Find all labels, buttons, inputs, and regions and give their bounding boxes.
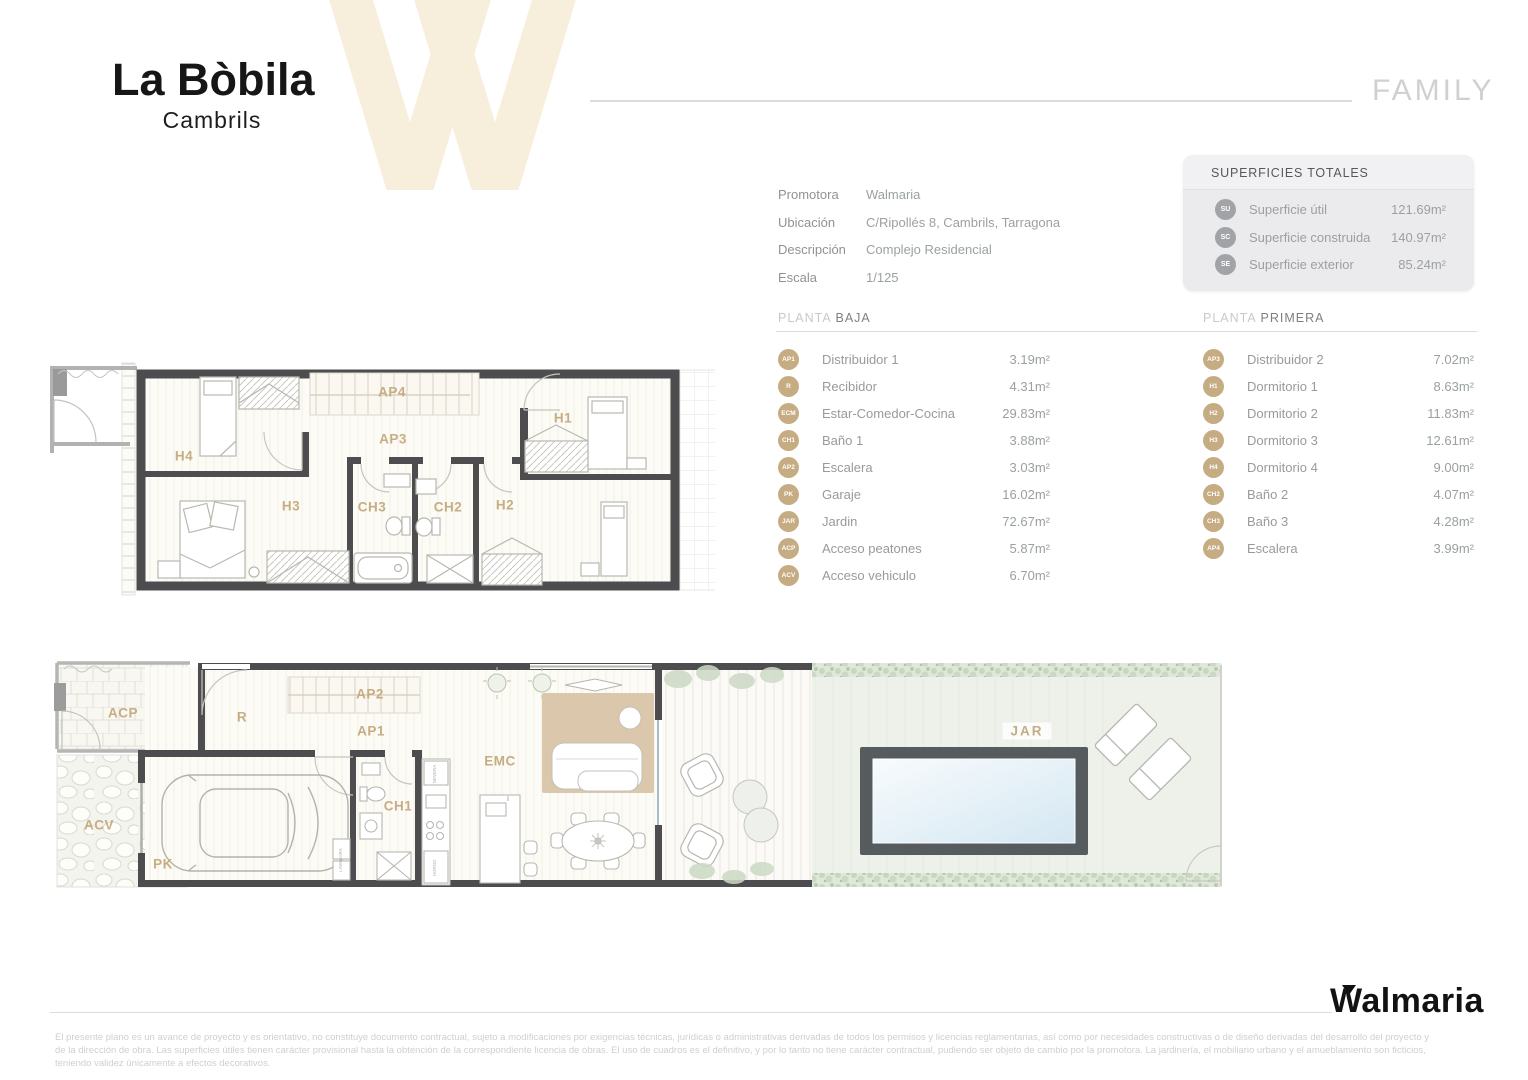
plan-type-label: FAMILY (1372, 74, 1494, 108)
room-row: H4 Dormitorio 4 9.00m² (1203, 454, 1474, 481)
room-row: PK Garaje 16.02m² (778, 481, 1050, 508)
info-value: Complejo Residencial (866, 242, 992, 257)
room-badge: H2 (1203, 403, 1224, 424)
planta-word: PLANTA (778, 311, 831, 325)
room-badge: H3 (1203, 430, 1224, 451)
columns-rule (776, 331, 1477, 332)
room-area: 3.88m² (1010, 433, 1050, 448)
room-area: 7.02m² (1434, 352, 1474, 367)
room-name: Distribuidor 1 (822, 352, 899, 367)
entry-annex (50, 363, 137, 595)
room-area: 11.83m² (1427, 406, 1474, 421)
room-name: Recibidor (822, 379, 877, 394)
room-row: AP4 Escalera 3.99m² (1203, 535, 1474, 562)
totals-box: SUPERFICIES TOTALES SU Superficie útil 1… (1183, 155, 1474, 291)
room-row: CH3 Baño 3 4.28m² (1203, 508, 1474, 535)
living-area (542, 679, 654, 793)
room-badge: ECM (778, 403, 799, 424)
project-title: La Bòbila (112, 54, 332, 106)
room-row: H3 Dormitorio 3 12.61m² (1203, 427, 1474, 454)
room-area: 72.67m² (1002, 514, 1050, 529)
room-row: H2 Dormitorio 2 11.83m² (1203, 400, 1474, 427)
info-value: Walmaria (866, 187, 920, 202)
room-name: Garaje (822, 487, 861, 502)
room-row: AP2 Escalera 3.03m² (778, 454, 1050, 481)
disclaimer-line: teniendo validez únicamente a efectos de… (55, 1057, 1475, 1070)
disclaimer-line: El presente plano es un avance de proyec… (55, 1031, 1475, 1044)
totals-row: SU Superficie útil 121.69m² (1183, 196, 1474, 224)
room-name: Baño 1 (822, 433, 863, 448)
room-name: Distribuidor 2 (1247, 352, 1324, 367)
room-badge: AP4 (1203, 538, 1224, 559)
room-badge: CH3 (1203, 511, 1224, 532)
totals-body: SU Superficie útil 121.69m² SC Superfici… (1183, 190, 1474, 279)
room-label-pk: PK (153, 857, 173, 872)
info-row: Promotora Walmaria (778, 181, 1178, 209)
room-label-h2: H2 (496, 498, 514, 513)
project-subtitle: Cambrils (112, 107, 312, 134)
room-area: 3.99m² (1434, 541, 1474, 556)
room-badge: CH1 (778, 430, 799, 451)
room-area: 4.07m² (1434, 487, 1474, 502)
primera-word: PRIMERA (1261, 311, 1325, 325)
room-badge: JAR (778, 511, 799, 532)
room-area: 3.19m² (1010, 352, 1050, 367)
room-row: ACV Acceso vehiculo 6.70m² (778, 562, 1050, 589)
room-row: JAR Jardin 72.67m² (778, 508, 1050, 535)
room-row: ACP Acceso peatones 5.87m² (778, 535, 1050, 562)
room-area: 8.63m² (1434, 379, 1474, 394)
room-label-ap2: AP2 (356, 687, 384, 702)
planta-primera-list: AP3 Distribuidor 2 7.02m² H1 Dormitorio … (1203, 346, 1474, 562)
room-label-h3: H3 (282, 499, 300, 514)
room-area: 29.83m² (1002, 406, 1050, 421)
room-row: CH1 Baño 1 3.88m² (778, 427, 1050, 454)
area-label: Superficie exterior (1249, 257, 1354, 272)
floor-plan-ground-floor: NEVERA HORNO LAVADORA (50, 655, 1230, 895)
info-value: 1/125 (866, 270, 899, 285)
oven-label: HORNO (432, 859, 437, 876)
room-row: AP3 Distribuidor 2 7.02m² (1203, 346, 1474, 373)
planta-primera-header: PLANTA PRIMERA (1203, 311, 1324, 325)
room-label-ap4: AP4 (378, 385, 406, 400)
stairs-ground (288, 677, 420, 713)
info-row: Descripción Complejo Residencial (778, 236, 1178, 264)
info-label: Ubicación (778, 215, 866, 230)
area-badge: SC (1215, 227, 1236, 248)
room-label-acv: ACV (84, 818, 114, 833)
totals-title: SUPERFICIES TOTALES (1183, 155, 1474, 190)
room-badge: ACV (778, 565, 799, 586)
room-name: Escalera (1247, 541, 1298, 556)
info-value: C/Ripollés 8, Cambrils, Tarragona (866, 215, 1060, 230)
area-label: Superficie construida (1249, 230, 1370, 245)
pool (860, 747, 1088, 855)
washer-label: LAVADORA (338, 848, 343, 872)
room-badge: AP2 (778, 457, 799, 478)
room-label-emc: EMC (484, 754, 516, 769)
room-area: 4.31m² (1010, 379, 1050, 394)
room-label-ap3: AP3 (379, 432, 407, 447)
room-badge: H4 (1203, 457, 1224, 478)
info-row: Ubicación C/Ripollés 8, Cambrils, Tarrag… (778, 209, 1178, 237)
project-logo: La Bòbila Cambrils (112, 54, 332, 134)
area-value: 140.97m² (1391, 230, 1446, 245)
room-name: Jardin (822, 514, 857, 529)
room-name: Dormitorio 2 (1247, 406, 1318, 421)
info-label: Escala (778, 270, 866, 285)
room-row: R Recibidor 4.31m² (778, 373, 1050, 400)
room-label-h4: H4 (175, 449, 193, 464)
room-area: 12.61m² (1426, 433, 1474, 448)
room-badge: PK (778, 484, 799, 505)
header-rule (590, 100, 1352, 102)
room-area: 5.87m² (1010, 541, 1050, 556)
info-label: Promotora (778, 187, 866, 202)
room-label-acp: ACP (108, 706, 138, 721)
room-area: 6.70m² (1010, 568, 1050, 583)
room-name: Baño 2 (1247, 487, 1288, 502)
facade-strip (680, 370, 715, 590)
room-badge: CH2 (1203, 484, 1224, 505)
room-name: Dormitorio 4 (1247, 460, 1318, 475)
totals-row: SE Superficie exterior 85.24m² (1183, 251, 1474, 279)
room-area: 3.03m² (1010, 460, 1050, 475)
project-info: Promotora Walmaria Ubicación C/Ripollés … (778, 181, 1178, 291)
planta-baja-header: PLANTA BAJA (778, 311, 871, 325)
room-label-h1: H1 (554, 411, 572, 426)
room-name: Escalera (822, 460, 873, 475)
planta-word: PLANTA (1203, 311, 1256, 325)
area-label: Superficie útil (1249, 202, 1327, 217)
room-name: Estar-Comedor-Cocina (822, 406, 955, 421)
room-row: AP1 Distribuidor 1 3.19m² (778, 346, 1050, 373)
room-area: 16.02m² (1002, 487, 1050, 502)
room-badge: R (778, 376, 799, 397)
room-row: H1 Dormitorio 1 8.63m² (1203, 373, 1474, 400)
fridge-label: NEVERA (432, 765, 437, 784)
room-badge: AP3 (1203, 349, 1224, 370)
brand-logo-triangle-icon (1342, 985, 1356, 995)
info-row: Escala 1/125 (778, 264, 1178, 292)
room-label-ap1: AP1 (357, 724, 385, 739)
totals-row: SC Superficie construida 140.97m² (1183, 224, 1474, 252)
room-area: 4.28m² (1434, 514, 1474, 529)
area-badge: SU (1215, 199, 1236, 220)
footer-rule (50, 1012, 1332, 1013)
room-label-r: R (237, 710, 247, 725)
room-row: ECM Estar-Comedor-Cocina 29.83m² (778, 400, 1050, 427)
planta-baja-list: AP1 Distribuidor 1 3.19m² R Recibidor 4.… (778, 346, 1050, 589)
room-label-ch3: CH3 (358, 500, 387, 515)
area-value: 121.69m² (1391, 202, 1446, 217)
area-value: 85.24m² (1398, 257, 1446, 272)
room-badge: ACP (778, 538, 799, 559)
watermark-w (300, 0, 580, 190)
room-name: Dormitorio 3 (1247, 433, 1318, 448)
room-row: CH2 Baño 2 4.07m² (1203, 481, 1474, 508)
room-name: Baño 3 (1247, 514, 1288, 529)
disclaimer-line: de la dirección de obra. Las superficies… (55, 1044, 1475, 1057)
room-label-ch1: CH1 (384, 799, 413, 814)
room-label-jar: JAR (1002, 723, 1051, 740)
room-name: Acceso peatones (822, 541, 922, 556)
brochure-page: La Bòbila Cambrils FAMILY Promotora Walm… (0, 0, 1528, 1080)
info-label: Descripción (778, 242, 866, 257)
room-badge: AP1 (778, 349, 799, 370)
room-name: Acceso vehiculo (822, 568, 916, 583)
room-label-ch2: CH2 (434, 500, 463, 515)
room-badge: H1 (1203, 376, 1224, 397)
room-name: Dormitorio 1 (1247, 379, 1318, 394)
legal-disclaimer: El presente plano es un avance de proyec… (55, 1031, 1475, 1070)
room-area: 9.00m² (1434, 460, 1474, 475)
area-badge: SE (1215, 254, 1236, 275)
baja-word: BAJA (836, 311, 871, 325)
